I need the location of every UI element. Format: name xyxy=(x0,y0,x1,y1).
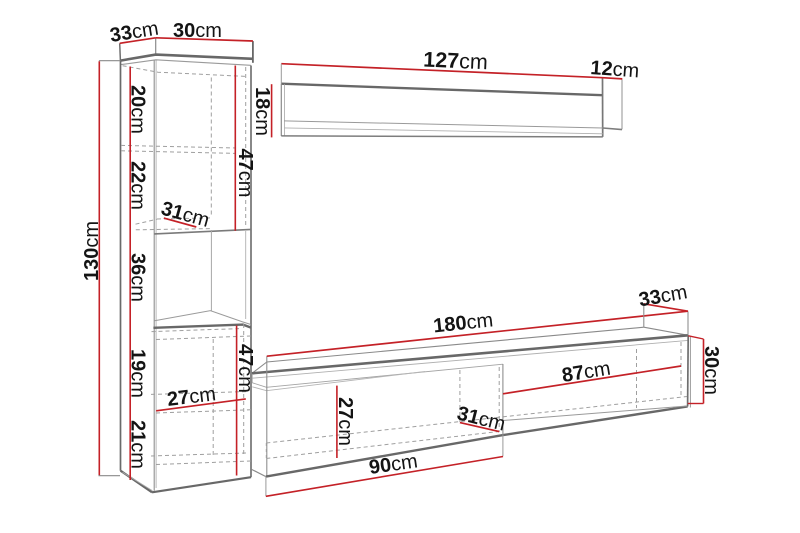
svg-text:30cm: 30cm xyxy=(173,20,222,42)
svg-text:20cm: 20cm xyxy=(127,85,149,134)
svg-text:36cm: 36cm xyxy=(127,253,149,302)
svg-text:47cm: 47cm xyxy=(234,149,256,198)
svg-text:18cm: 18cm xyxy=(251,87,273,136)
svg-text:22cm: 22cm xyxy=(127,161,149,210)
svg-text:19cm: 19cm xyxy=(127,349,149,398)
svg-text:127cm: 127cm xyxy=(423,48,489,75)
svg-text:47cm: 47cm xyxy=(234,344,256,393)
svg-text:130cm: 130cm xyxy=(81,221,103,281)
svg-text:21cm: 21cm xyxy=(127,420,149,469)
svg-text:30cm: 30cm xyxy=(700,346,722,395)
svg-text:12cm: 12cm xyxy=(590,57,640,82)
svg-text:27cm: 27cm xyxy=(334,397,356,446)
